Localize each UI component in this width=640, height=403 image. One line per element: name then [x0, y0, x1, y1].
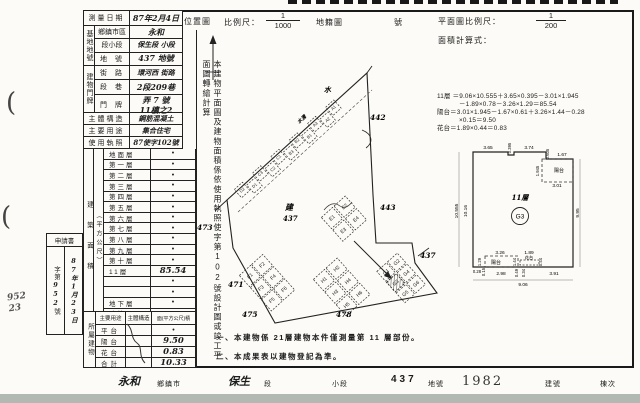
floors-group-label: 建築面積: [84, 149, 94, 329]
plan-scale-label: 平面圖比例尺：: [438, 16, 501, 27]
map-unit-label: A1: [330, 104, 338, 112]
annex-header-area: 面(平方公尺)積: [152, 312, 195, 324]
map-unit-label: C3: [257, 169, 265, 177]
footer-section-label: 段: [264, 379, 272, 389]
map-unit-label: C1: [275, 153, 283, 161]
map-unit-label: B3: [287, 149, 295, 157]
floor-row-label: 第十層: [104, 255, 151, 265]
license-value: 87使字102號: [130, 137, 182, 148]
dim-text: 9.95: [575, 208, 581, 218]
lot-number: 471: [228, 280, 244, 289]
dim-text: 0.395: [507, 142, 512, 153]
dim-text: 1.945: [535, 165, 540, 176]
map-unit-label: H4: [344, 277, 353, 286]
floor-row-label: [104, 287, 151, 297]
floor-row: 第五層 •: [104, 202, 195, 213]
center-lot-number: 437: [283, 214, 298, 223]
handwritten-scribble: [324, 202, 352, 210]
map-unit-label: H2: [333, 264, 342, 273]
map-unit-label: E4: [352, 215, 361, 224]
map-unit-label: B1: [306, 132, 314, 140]
floor-row-label: 地下層: [104, 298, 151, 308]
section-value: 保生段 小段: [130, 39, 182, 51]
area-calc-block: 11層 ＝9.06×10.555＋3.65×0.395－3.01×1.945 －…: [437, 93, 585, 133]
survey-document-page: ( ( 952 23 位置圖 比例尺： 1 1000 地籍圖 號 平面圖比例尺：…: [0, 0, 640, 403]
floor-row-label: 11層: [104, 266, 151, 276]
dim-text: 0.34: [521, 268, 526, 277]
dim-text: 3.91: [549, 271, 559, 277]
map-unit-label: A3: [312, 120, 320, 128]
scale-denominator: 1000: [275, 22, 292, 29]
footer-subsection-label: 小段: [332, 379, 348, 389]
floor-row: 第八層 •: [104, 234, 195, 245]
floor-row: 第七層 •: [104, 223, 195, 234]
calc-line: 花台＝1.89×0.44＝0.83: [437, 125, 585, 133]
map-unit-label: F6: [280, 285, 289, 294]
annex-group-label: 所屬建物: [84, 312, 96, 368]
dim-text: 3.74: [524, 145, 534, 151]
balcony-label: 陽台: [491, 259, 501, 266]
usage-value: 集合住宅: [130, 125, 182, 136]
map-unit-label: E1: [328, 214, 337, 223]
map-unit-label: G4: [402, 269, 411, 278]
district-label: 鄉鎮市區: [95, 26, 130, 38]
scale-label: 比例尺：: [224, 17, 260, 28]
floor-row-value: •: [151, 170, 195, 180]
street-value: 環河西 街路: [130, 66, 182, 79]
unit-squares: D2D1C3C2C1B3B2B1A3A2A1E1E2E3E4F1F2F3F4F5…: [234, 100, 425, 316]
scan-edge-band: [0, 394, 640, 403]
structure-value: 鋼筋混凝土: [130, 113, 182, 124]
floor-row-value: •: [151, 245, 195, 255]
footer-section-value: 保生: [228, 373, 250, 389]
floor-row-value: •: [151, 149, 195, 159]
dim-text: 0.44: [538, 257, 543, 266]
street-extension: [367, 66, 372, 73]
floor-row-value: •: [151, 287, 195, 297]
dim-text: 3.01: [552, 183, 562, 189]
footer-lot-number: 437: [391, 374, 417, 385]
dim-text: 0.605: [545, 148, 550, 159]
floor-row: 第六層 •: [104, 213, 195, 224]
floor-row-label: 第七層: [104, 223, 151, 233]
margin-mark: (: [6, 88, 16, 118]
floor-row-value: •: [151, 277, 195, 287]
door-line1: 弄 7 號: [142, 95, 169, 105]
lot-value: 437 地號: [130, 53, 182, 65]
floor-row: 第四層 •: [104, 192, 195, 203]
lot-number: 475: [242, 310, 258, 319]
lot-number: 437: [420, 251, 436, 260]
floor-row-value: •: [151, 192, 195, 202]
annex-row-value: •: [152, 325, 195, 335]
floor-row-label: 第一層: [104, 160, 151, 170]
structure-label: 主體構造: [84, 113, 130, 124]
floor-row-value: •: [151, 298, 195, 308]
floor-row-value: 85.54: [151, 266, 195, 276]
page-title-clipped: [288, 0, 618, 4]
dim-text: 3.26: [495, 250, 505, 256]
map-unit-label: F4: [269, 273, 278, 282]
scale-denominator: 200: [545, 22, 558, 29]
map-unit-label: G5: [401, 289, 410, 298]
map-unit-label: F3: [257, 284, 266, 293]
center-lot-mark: 建: [284, 202, 295, 212]
dim-text: 1.44: [512, 257, 517, 266]
site-plan-map: D2D1C3C2C1B3B2B1A3A2A1E1E2E3E4F1F2F3F4F5…: [196, 30, 444, 330]
floor-row-value: •: [151, 181, 195, 191]
address-group-label: 建物門牌: [84, 66, 95, 112]
floors-unit-label: （平方公尺）: [94, 149, 104, 329]
floor-row-value: •: [151, 255, 195, 265]
application-title: 申請書: [47, 234, 82, 246]
survey-date-label: 測量日期: [84, 11, 130, 25]
map-unit-label: G6: [412, 280, 421, 289]
map-unit-label: D2: [238, 186, 246, 194]
lot-number: 443: [380, 203, 396, 212]
lane-value: 2段209巷: [130, 80, 182, 94]
dim-text: 9.06: [518, 282, 528, 288]
note-line: 一、本建物係 21層建物本件僅測量第 11 層部份。: [216, 332, 420, 343]
water-label: 水: [324, 85, 332, 94]
margin-handwriting: 952 23: [7, 291, 30, 316]
dim-text: 1.29: [477, 257, 482, 266]
location-map-label: 位置圖: [184, 16, 211, 27]
lot-number: 473: [197, 223, 213, 232]
map-unit-label: H1: [320, 276, 329, 285]
floor-row-label: 第四層: [104, 192, 151, 202]
strip-inner-line: [238, 90, 372, 212]
plan-scale-fraction: 1 200: [536, 12, 566, 29]
floor-row: 地面層 •: [104, 149, 195, 160]
floor-row: 第三層 •: [104, 181, 195, 192]
floor-row-label: 第三層: [104, 181, 151, 191]
floor-row-value: •: [151, 213, 195, 223]
scale-numerator: 1: [549, 12, 553, 19]
floor-row-value: •: [151, 160, 195, 170]
calc-line: －1.89×0.78－3.26×1.29＝85.54: [437, 101, 585, 109]
floor-row: 第九層 •: [104, 245, 195, 256]
floor-row-label: 地面層: [104, 149, 151, 159]
calc-line: 11層 ＝9.06×10.555＋3.65×0.395－3.01×1.945: [437, 93, 585, 101]
floor-row: 11層 85.54: [104, 266, 195, 277]
floor-row-value: •: [151, 223, 195, 233]
footer-building-label: 建號: [545, 379, 561, 389]
location-scale-fraction: 1 1000: [266, 12, 300, 29]
cadastral-map-label: 地籍圖: [316, 17, 343, 28]
door-label: 門牌: [95, 95, 130, 115]
street-extension: [215, 200, 227, 211]
section-label: 段小段: [95, 39, 130, 51]
building-info-table: 測量日期 87年2月4日 基地地號 鄉鎮市區 永和 段小段 保生段 小段 地號 …: [83, 10, 183, 149]
application-number: 字第952號: [51, 266, 61, 316]
floor-row-value: •: [151, 234, 195, 244]
number-label: 號: [394, 17, 403, 28]
dim-text: 0.49: [514, 268, 519, 277]
lane-label: 段巷: [95, 80, 130, 94]
lot-number: 478: [336, 310, 352, 319]
target-arrow: [354, 241, 392, 279]
calc-line: 陽台＝3.01×1.945－1.67×0.61＋3.26×1.44－0.28: [437, 109, 585, 117]
floor-row-label: 第八層: [104, 234, 151, 244]
floors-rows: 地面層 • 第一層 • 第二層 • 第三層 •: [104, 149, 195, 329]
street-label: 街路: [95, 66, 130, 79]
lot-number: 442: [370, 113, 386, 122]
floor-row-value: •: [151, 202, 195, 212]
survey-date-value: 87年2月4日: [130, 11, 182, 25]
map-unit-label: F2: [258, 261, 267, 270]
flowerbed: [520, 260, 539, 265]
map-unit-label: B2: [293, 137, 301, 145]
map-unit-label: G2: [393, 258, 402, 267]
map-unit-label: H6: [355, 290, 364, 299]
floor-row: 第二層 •: [104, 170, 195, 181]
scale-numerator: 1: [281, 12, 285, 19]
dim-text: 10.555: [454, 203, 460, 218]
floor-row: •: [104, 287, 195, 298]
floor-plan: 3.65 0.395 3.74 0.605 1.67 10.555 10.16 …: [446, 136, 636, 296]
map-unit-label: C2: [269, 165, 277, 173]
lot-label: 地號: [95, 53, 130, 65]
floor-row: 第一層 •: [104, 160, 195, 171]
annex-row-value: 9.50: [152, 336, 195, 346]
usage-label: 主要用途: [84, 125, 130, 136]
margin-mark: (: [1, 202, 11, 232]
footer-lot-label: 地號: [428, 379, 444, 389]
floor-row: •: [104, 277, 195, 288]
dim-text: 2.98: [496, 271, 506, 277]
application-date: 87年1月23日: [69, 257, 79, 325]
dim-text: 10.16: [463, 205, 469, 217]
site-group-label: 基地地號: [84, 26, 95, 65]
floor-row-label: [104, 277, 151, 287]
floor-label: 11層: [512, 193, 530, 202]
footer-district-label: 鄉鎮市: [157, 379, 181, 389]
annex-row-value: 10.33: [152, 358, 195, 368]
floor-row-label: 第二層: [104, 170, 151, 180]
flowerbed-label: 花台: [525, 254, 533, 261]
footer-block-label: 棟次: [600, 379, 616, 389]
ditch-label: 水溝: [296, 113, 309, 126]
application-box: 申請書 字第952號 87年1月23日: [46, 233, 83, 335]
balcony-label: 陽台: [554, 167, 564, 174]
dim-text: 0.15: [481, 267, 486, 276]
map-unit-label: F5: [268, 296, 277, 305]
map-unit-label: E3: [339, 227, 348, 236]
calc-line: ×0.15＝9.50: [437, 117, 585, 125]
floor-row-label: 第九層: [104, 245, 151, 255]
floor-area-table: 建築面積 （平方公尺） 地面層 • 第一層 • 第二層: [83, 149, 196, 312]
floor-row-label: 第六層: [104, 213, 151, 223]
floor-row: 第十層 •: [104, 255, 195, 266]
floor-row: 地下層 •: [104, 298, 195, 309]
floor-row-label: 第五層: [104, 202, 151, 212]
footer-district-value: 永和: [118, 373, 140, 389]
area-calc-label: 面積計算式：: [438, 35, 492, 46]
note-line: 二、本成果表以建物登記為準。: [216, 351, 342, 362]
map-unit-label: A2: [324, 116, 332, 124]
handwritten-scribble: [122, 320, 150, 368]
license-label: 使用執照: [84, 137, 130, 148]
footer-building-number: 1982: [462, 374, 503, 389]
district-value: 永和: [130, 26, 182, 38]
annex-row-value: 0.83: [152, 347, 195, 357]
map-unit-label: D1: [251, 181, 259, 189]
dim-text: 3.65: [483, 145, 493, 151]
north-arrow: [207, 35, 219, 80]
dim-text: 1.67: [557, 152, 567, 158]
unit-label: G3: [516, 214, 525, 221]
map-unit-label: H3: [331, 288, 340, 297]
